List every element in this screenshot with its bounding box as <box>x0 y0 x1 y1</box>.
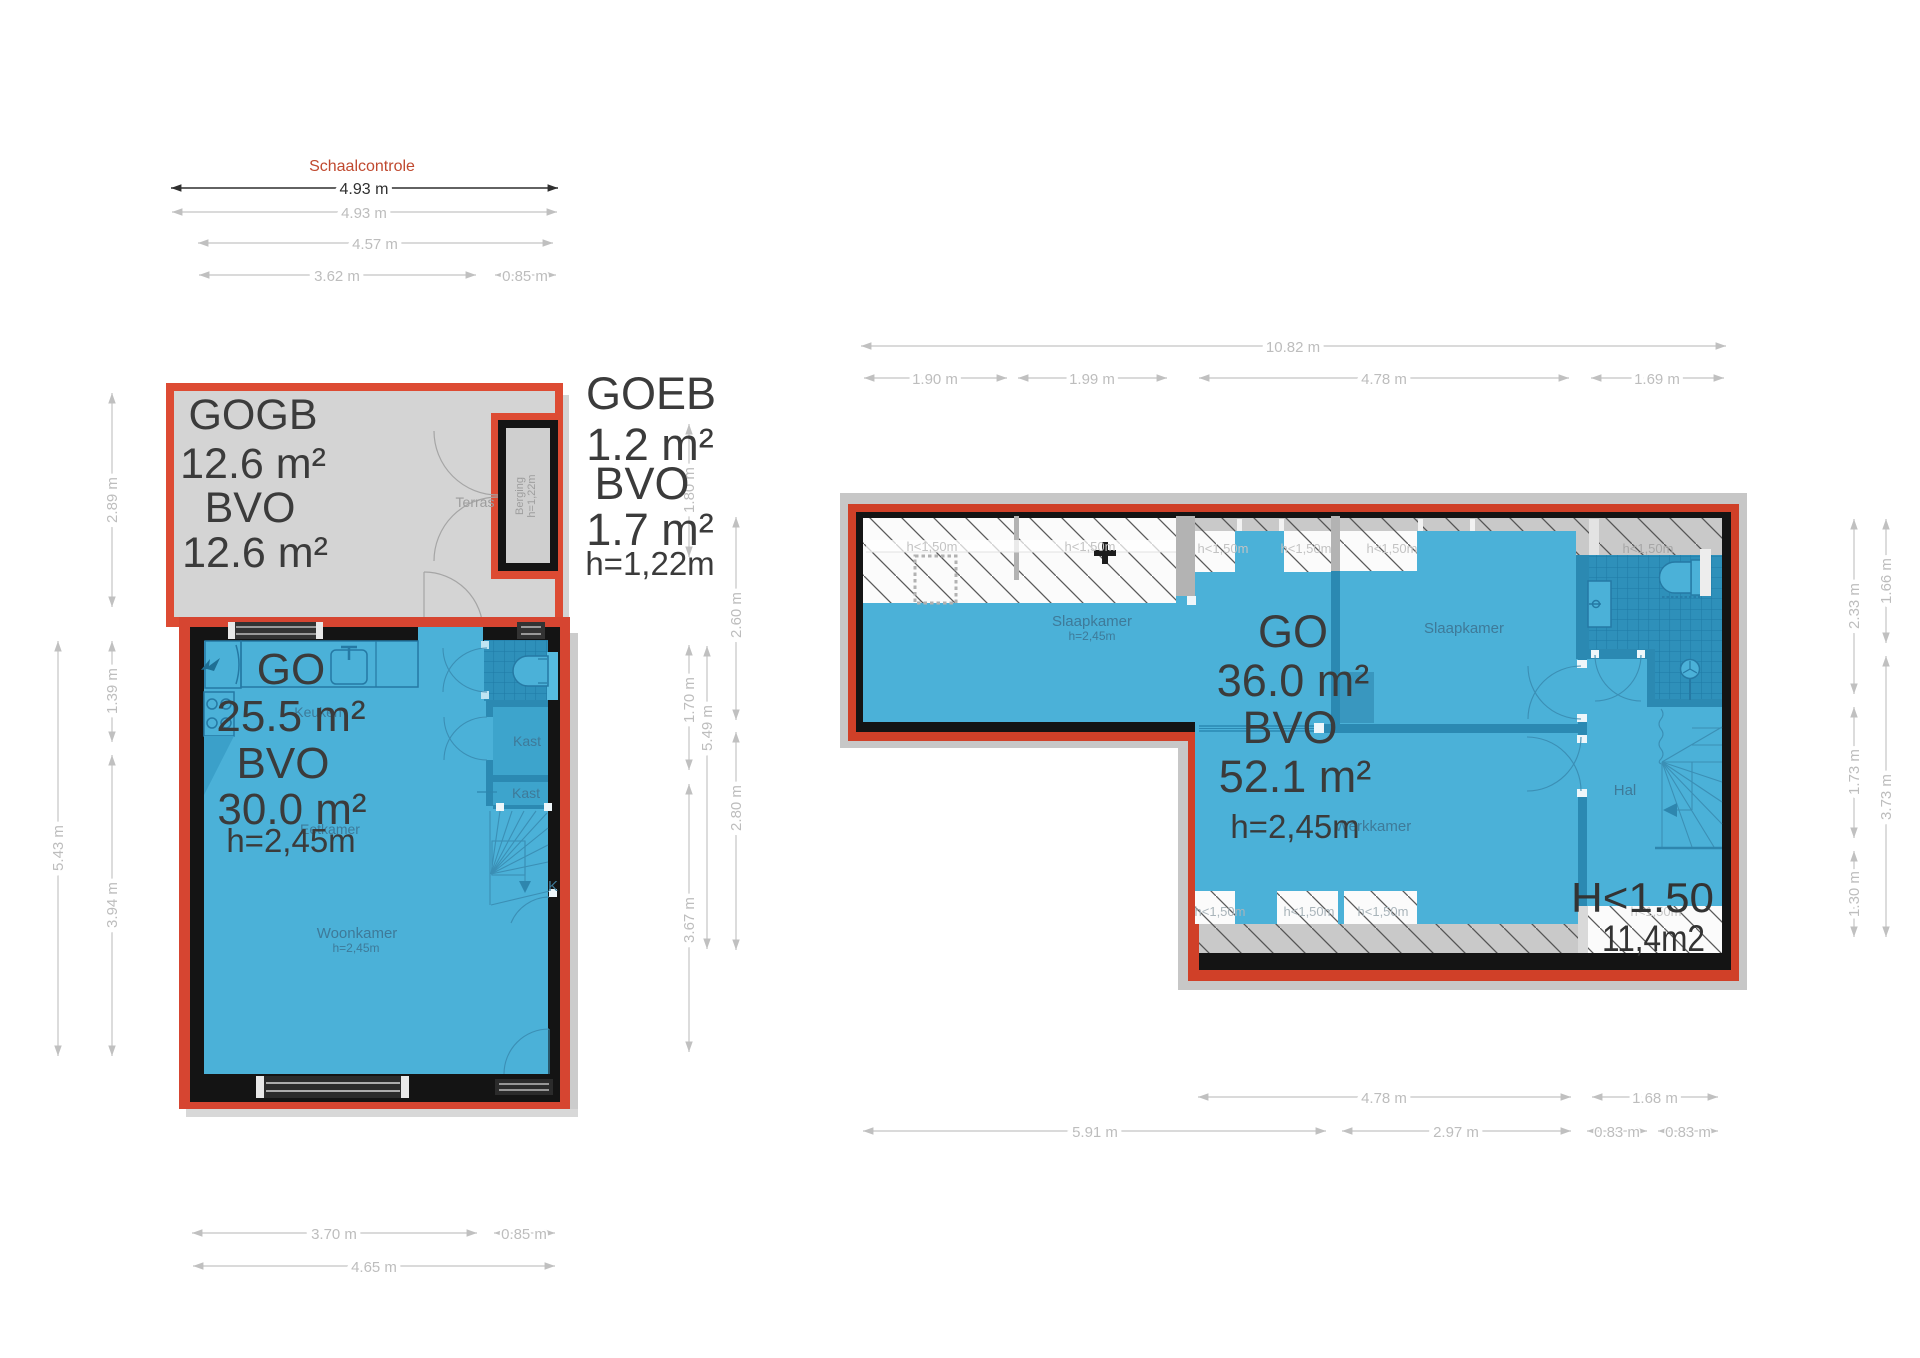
svg-text:Slaapkamer: Slaapkamer <box>1052 613 1132 630</box>
svg-text:52.1 m²: 52.1 m² <box>1219 751 1372 802</box>
svg-text:h<1,50m: h<1,50m <box>1623 541 1674 556</box>
svg-text:1.30 m: 1.30 m <box>1846 871 1863 917</box>
svg-text:5.43 m: 5.43 m <box>50 825 67 871</box>
svg-text:h<1,50m: h<1,50m <box>1065 539 1116 554</box>
svg-text:1.69 m: 1.69 m <box>1634 371 1680 388</box>
svg-text:h<1,50m: h<1,50m <box>1284 904 1335 919</box>
svg-text:BVO: BVO <box>237 739 330 788</box>
svg-text:Berging: Berging <box>514 477 526 515</box>
svg-text:5.91 m: 5.91 m <box>1072 1124 1118 1141</box>
svg-text:0.83 m: 0.83 m <box>1665 1124 1711 1141</box>
svg-text:12.6 m²: 12.6 m² <box>180 440 326 488</box>
svg-text:1.90 m: 1.90 m <box>912 371 958 388</box>
svg-text:1.68 m: 1.68 m <box>1632 1090 1678 1107</box>
svg-text:Schaalcontrole: Schaalcontrole <box>309 158 415 175</box>
svg-text:h=2,45m: h=2,45m <box>1230 808 1359 845</box>
svg-text:1.73 m: 1.73 m <box>1846 749 1863 795</box>
svg-text:10.82 m: 10.82 m <box>1266 339 1320 356</box>
svg-text:GOGB: GOGB <box>188 391 317 439</box>
svg-text:h=1,22m: h=1,22m <box>585 545 714 582</box>
svg-text:H<1.50: H<1.50 <box>1571 874 1714 921</box>
svg-text:h<1,50m: h<1,50m <box>1281 541 1332 556</box>
svg-text:3.67 m: 3.67 m <box>681 897 698 943</box>
svg-text:3.70 m: 3.70 m <box>311 1226 357 1243</box>
svg-text:3.62 m: 3.62 m <box>314 268 360 285</box>
svg-text:2.89 m: 2.89 m <box>104 477 121 523</box>
svg-text:GO: GO <box>257 645 325 694</box>
svg-text:K: K <box>548 878 558 895</box>
svg-text:2.33 m: 2.33 m <box>1846 583 1863 629</box>
svg-text:4.57 m: 4.57 m <box>352 236 398 253</box>
svg-text:11,4m2: 11,4m2 <box>1602 918 1705 959</box>
svg-text:0.83 m: 0.83 m <box>1594 1124 1640 1141</box>
svg-text:Woonkamer: Woonkamer <box>317 925 398 942</box>
svg-text:h<1,50m: h<1,50m <box>1195 904 1246 919</box>
svg-text:h<1,50m: h<1,50m <box>1358 904 1409 919</box>
svg-text:BVO: BVO <box>205 484 296 532</box>
svg-text:2.60 m: 2.60 m <box>728 592 745 638</box>
svg-text:h<1,50m: h<1,50m <box>1198 541 1249 556</box>
svg-text:5.49 m: 5.49 m <box>699 705 716 751</box>
svg-text:1.39 m: 1.39 m <box>104 668 121 714</box>
svg-text:Hal: Hal <box>1614 782 1637 799</box>
svg-text:2.97 m: 2.97 m <box>1433 1124 1479 1141</box>
svg-text:4.93 m: 4.93 m <box>340 181 389 198</box>
svg-text:h=2,45m: h=2,45m <box>226 822 355 859</box>
svg-text:h=1,22m: h=1,22m <box>526 474 538 517</box>
svg-text:2.80 m: 2.80 m <box>728 785 745 831</box>
svg-text:4.93 m: 4.93 m <box>341 205 387 222</box>
svg-text:GOEB: GOEB <box>586 368 716 419</box>
svg-text:h=2,45m: h=2,45m <box>332 941 379 955</box>
svg-text:4.78 m: 4.78 m <box>1361 371 1407 388</box>
svg-text:4.78 m: 4.78 m <box>1361 1090 1407 1107</box>
svg-text:25.5 m²: 25.5 m² <box>216 692 365 741</box>
svg-text:h<1,50m: h<1,50m <box>1367 541 1418 556</box>
svg-text:1.66 m: 1.66 m <box>1878 558 1895 604</box>
svg-text:GO: GO <box>1258 606 1328 657</box>
svg-text:Kast: Kast <box>513 733 541 749</box>
svg-text:3.73 m: 3.73 m <box>1878 774 1895 820</box>
svg-text:12.6 m²: 12.6 m² <box>182 529 328 577</box>
svg-text:BVO: BVO <box>1242 702 1337 753</box>
svg-text:0.85 m: 0.85 m <box>501 1226 547 1243</box>
svg-text:3.94 m: 3.94 m <box>104 882 121 928</box>
svg-text:4.65 m: 4.65 m <box>351 1259 397 1276</box>
svg-text:BVO: BVO <box>594 458 689 509</box>
svg-text:1.99 m: 1.99 m <box>1069 371 1115 388</box>
svg-text:0.85 m: 0.85 m <box>502 268 548 285</box>
svg-text:36.0 m²: 36.0 m² <box>1217 655 1370 706</box>
svg-text:Slaapkamer: Slaapkamer <box>1424 620 1504 637</box>
svg-text:h=2,45m: h=2,45m <box>1068 629 1115 643</box>
svg-text:Terras: Terras <box>456 494 495 510</box>
svg-text:Kast: Kast <box>512 785 540 801</box>
svg-text:h<1,50m: h<1,50m <box>907 539 958 554</box>
svg-text:1.70 m: 1.70 m <box>681 677 698 723</box>
